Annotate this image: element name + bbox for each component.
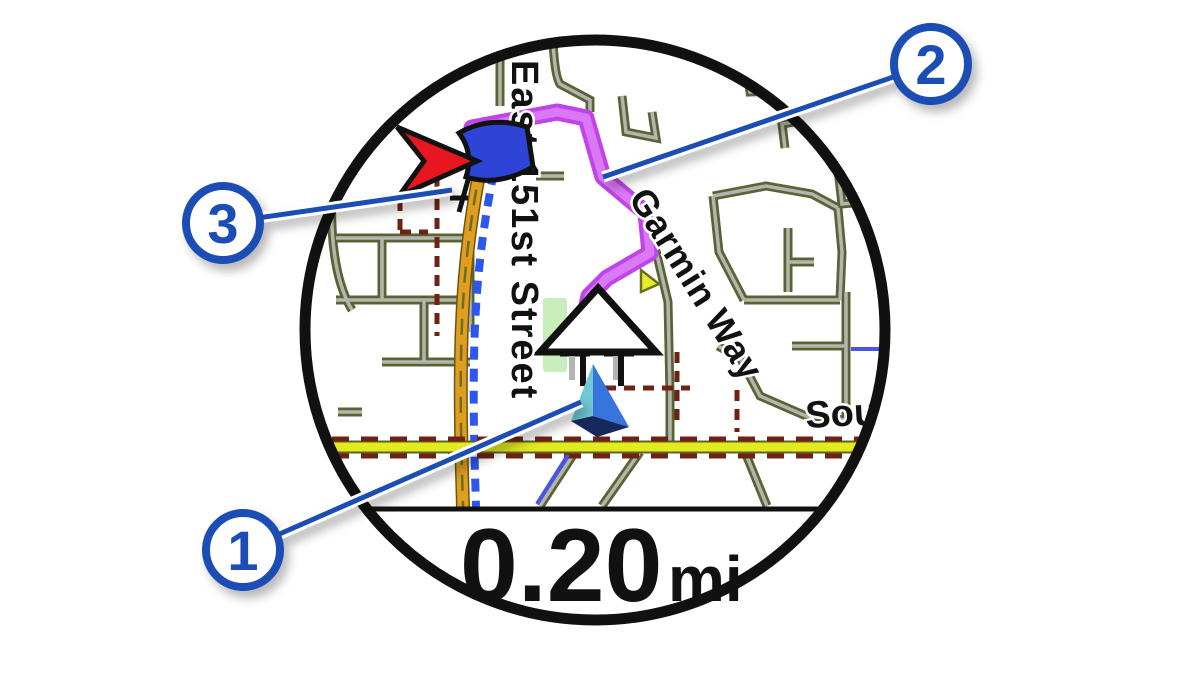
distance-value: 0.20 <box>460 508 662 624</box>
watch-map-illustration: East 151st Street Garmin Way Sout 0.20 m… <box>0 0 1200 676</box>
callout-3: 3 <box>186 186 260 260</box>
callout-1-number: 1 <box>227 519 258 582</box>
callout-1: 1 <box>206 513 280 587</box>
street-label-east-151st: East 151st Street <box>503 60 545 400</box>
figure-canvas: East 151st Street Garmin Way Sout 0.20 m… <box>0 0 1200 676</box>
yellow-road <box>330 439 862 456</box>
callout-3-number: 3 <box>207 192 238 255</box>
callout-2: 2 <box>894 27 968 101</box>
blue-flag-icon <box>459 122 533 180</box>
callout-2-number: 2 <box>915 33 946 96</box>
